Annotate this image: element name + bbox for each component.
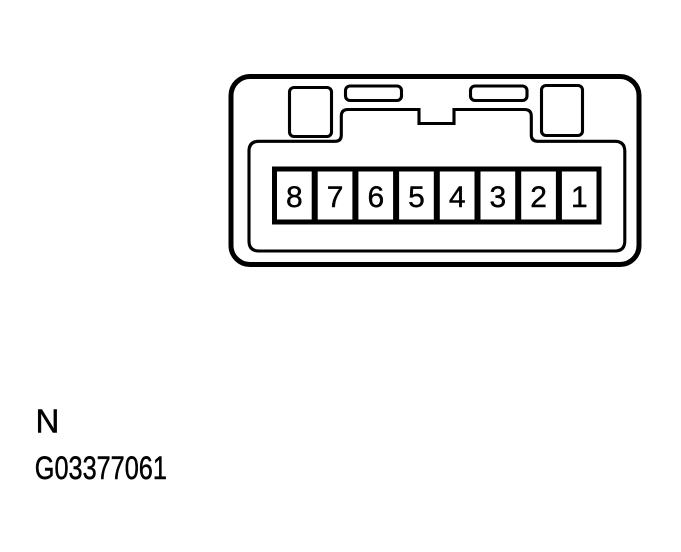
svg-text:5: 5: [408, 181, 425, 214]
svg-text:G03377061: G03377061: [35, 451, 167, 487]
svg-text:N: N: [36, 403, 60, 440]
svg-text:1: 1: [571, 181, 588, 214]
svg-text:3: 3: [490, 181, 507, 214]
svg-text:6: 6: [367, 181, 384, 214]
svg-text:8: 8: [286, 181, 303, 214]
svg-text:4: 4: [449, 181, 466, 214]
svg-text:7: 7: [327, 181, 344, 214]
svg-text:2: 2: [530, 181, 547, 214]
